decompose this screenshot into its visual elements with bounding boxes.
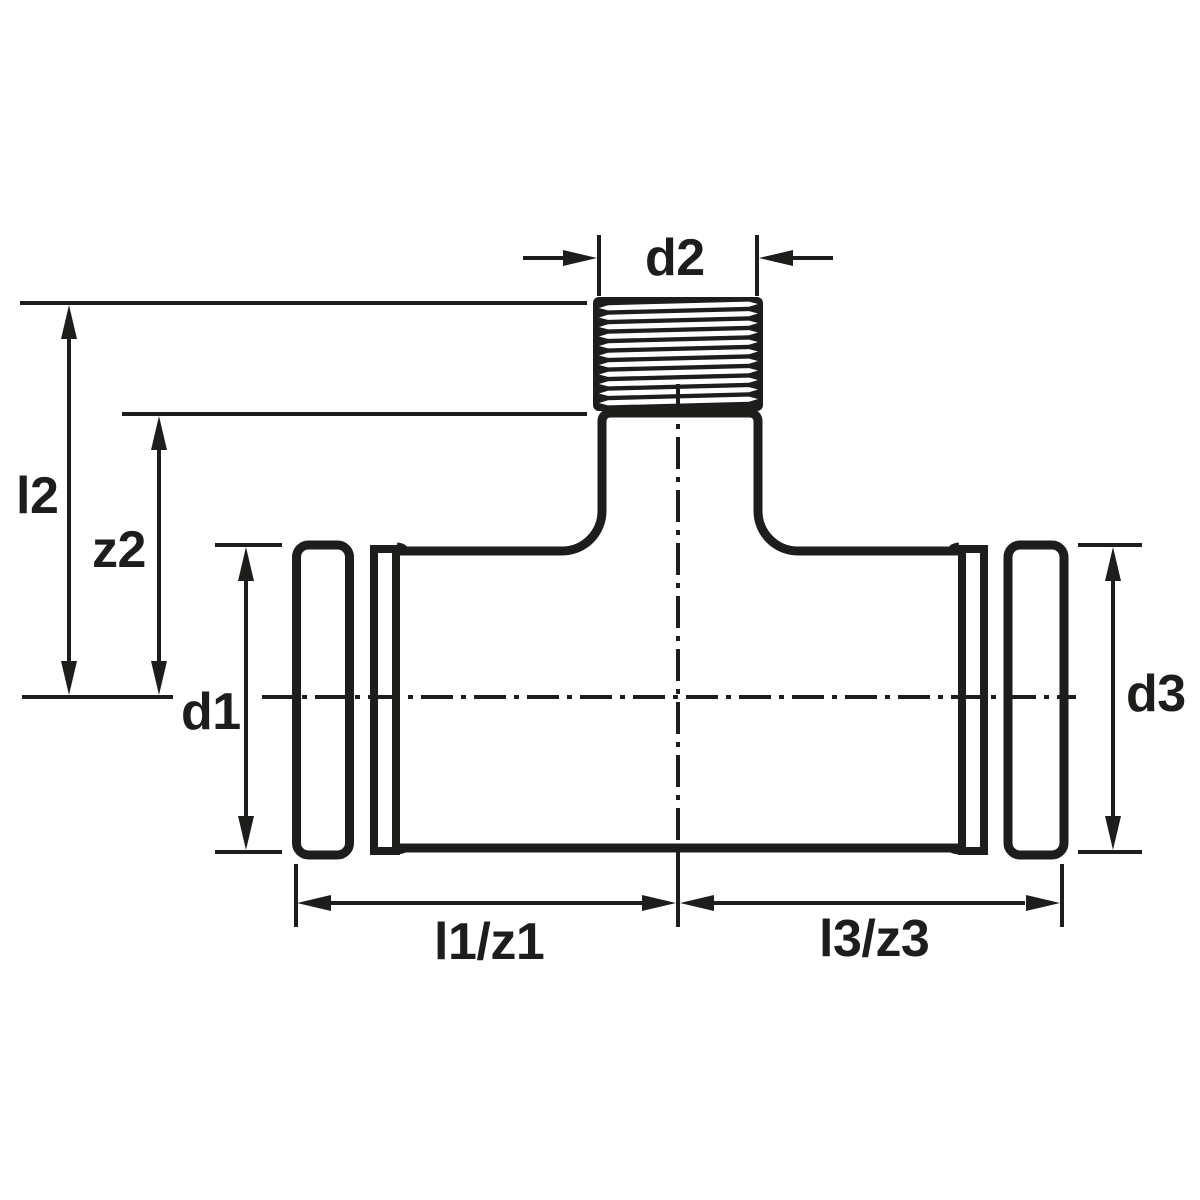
l1z1-arrow-right [642, 895, 676, 911]
dimension-d2: d2 [523, 229, 833, 296]
d2-arrow-left [563, 250, 597, 266]
l2-arrow-up [61, 305, 77, 339]
right-bottom-shoulder-ramp [951, 848, 960, 851]
drawing-canvas: d2 l2 z2 d1 d3 [0, 0, 1200, 1200]
right-groove-ring [962, 549, 984, 851]
z2-arrow-up [151, 416, 167, 450]
dimension-l3z3: l3/z3 [680, 864, 1062, 968]
dimension-label-l2: l2 [16, 467, 58, 525]
d1-arrow-up [238, 547, 254, 581]
d2-arrow-right [759, 250, 793, 266]
dimension-label-l1z1: l1/z1 [434, 913, 544, 971]
dimension-label-d1: d1 [181, 683, 241, 741]
l1z1-arrow-left [297, 895, 331, 911]
tee-fitting [297, 297, 1065, 855]
dimension-label-l3z3: l3/z3 [819, 910, 929, 968]
dimension-label-z2: z2 [92, 521, 146, 579]
d1-arrow-down [238, 816, 254, 850]
dimension-l1z1: l1/z1 [296, 852, 678, 971]
tee-fitting-dimension-diagram: d2 l2 z2 d1 d3 [0, 0, 1200, 1200]
l3z3-arrow-right [1026, 895, 1060, 911]
z2-arrow-down [151, 661, 167, 695]
l3z3-arrow-left [680, 895, 714, 911]
dimension-label-d2: d2 [645, 229, 705, 287]
l2-arrow-down [61, 661, 77, 695]
d3-arrow-down [1105, 816, 1121, 850]
dimension-d3: d3 [1078, 545, 1186, 852]
left-groove-ring [374, 549, 396, 851]
d3-arrow-up [1105, 547, 1121, 581]
right-end-cap [1008, 545, 1064, 855]
dimension-label-d3: d3 [1126, 665, 1186, 723]
left-end-cap [297, 545, 350, 855]
